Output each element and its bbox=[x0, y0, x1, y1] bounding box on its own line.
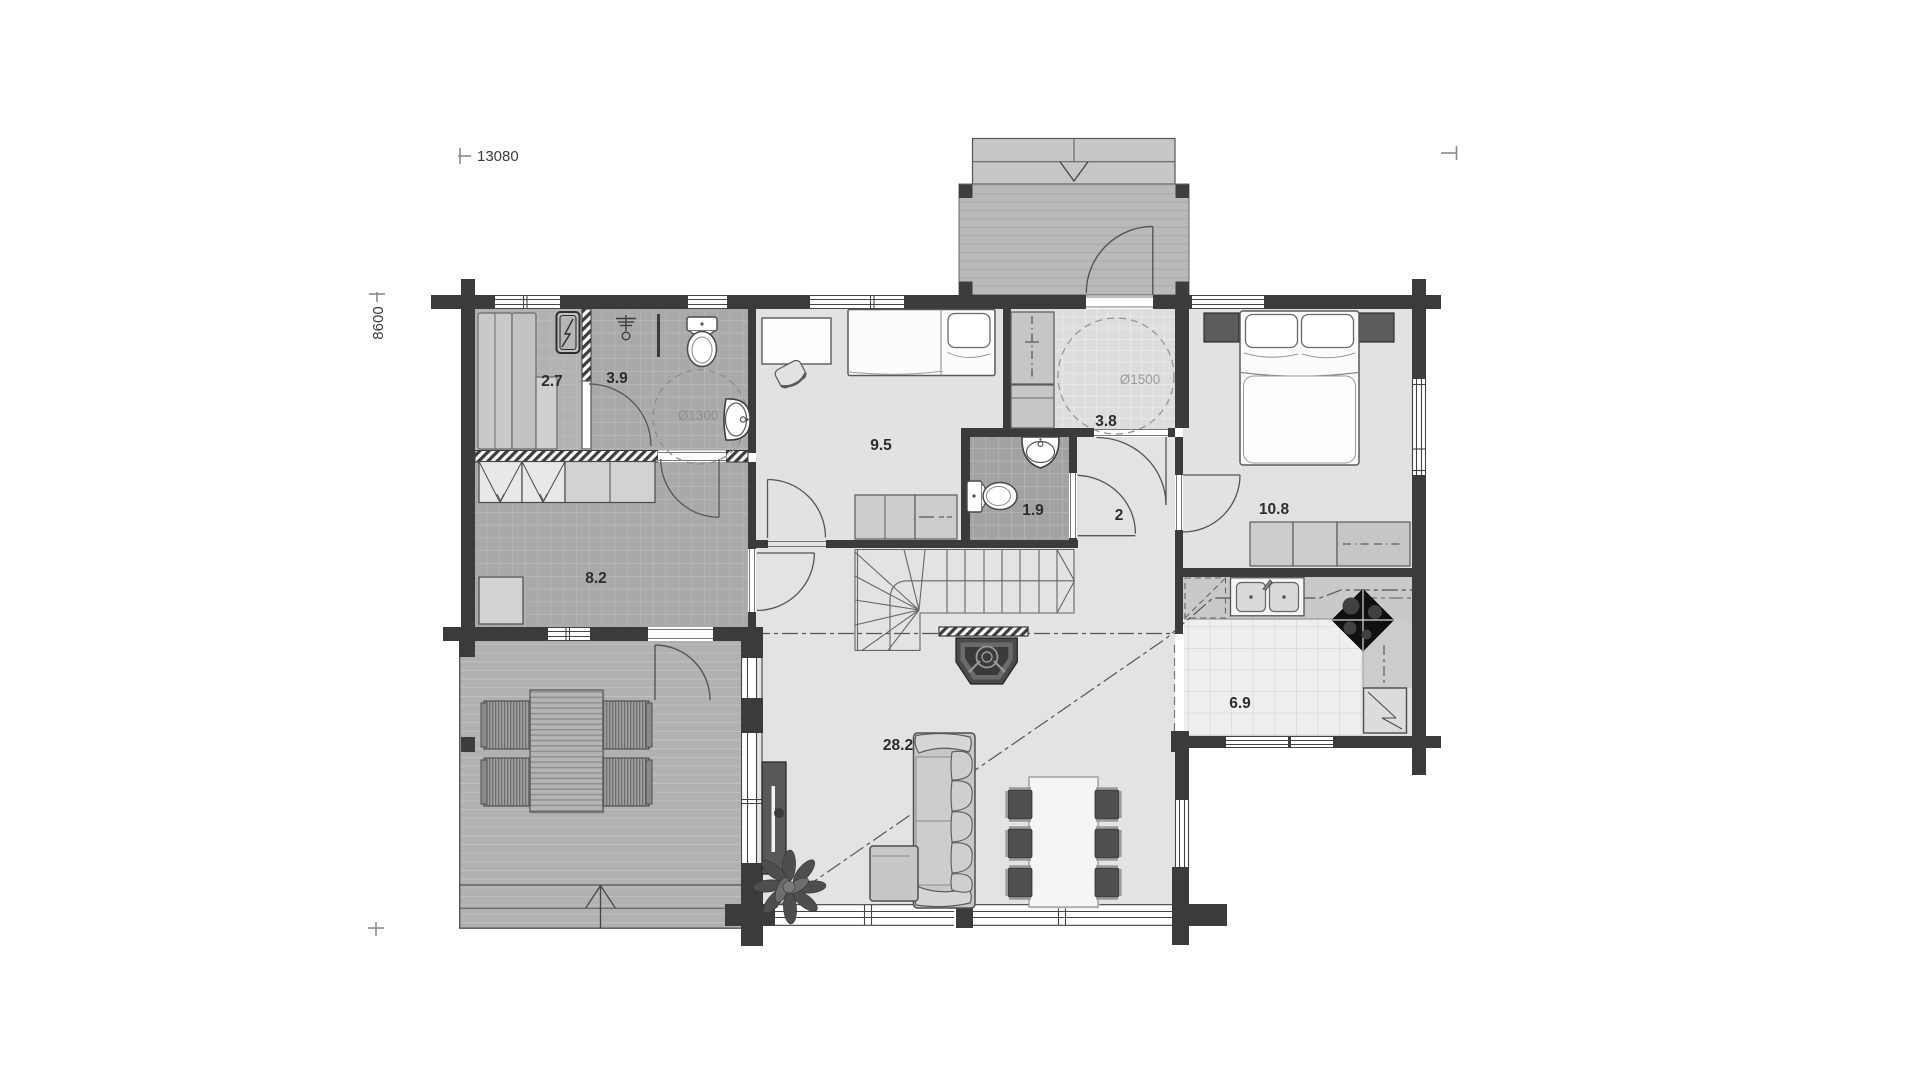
svg-text:10.8: 10.8 bbox=[1259, 501, 1290, 518]
svg-text:1.9: 1.9 bbox=[1022, 502, 1044, 519]
svg-text:8.2: 8.2 bbox=[585, 570, 607, 587]
svg-text:9.5: 9.5 bbox=[870, 437, 892, 454]
svg-text:2.7: 2.7 bbox=[541, 373, 563, 390]
svg-text:28.2: 28.2 bbox=[883, 737, 913, 754]
svg-text:3.8: 3.8 bbox=[1095, 413, 1117, 430]
svg-text:2: 2 bbox=[1115, 507, 1124, 524]
svg-text:6.9: 6.9 bbox=[1229, 695, 1251, 712]
svg-text:Ø1500: Ø1500 bbox=[1120, 372, 1161, 387]
svg-text:8600: 8600 bbox=[370, 306, 387, 339]
svg-text:Ø1300: Ø1300 bbox=[678, 408, 719, 423]
svg-text:3.9: 3.9 bbox=[606, 370, 628, 387]
svg-text:13080: 13080 bbox=[477, 148, 519, 165]
